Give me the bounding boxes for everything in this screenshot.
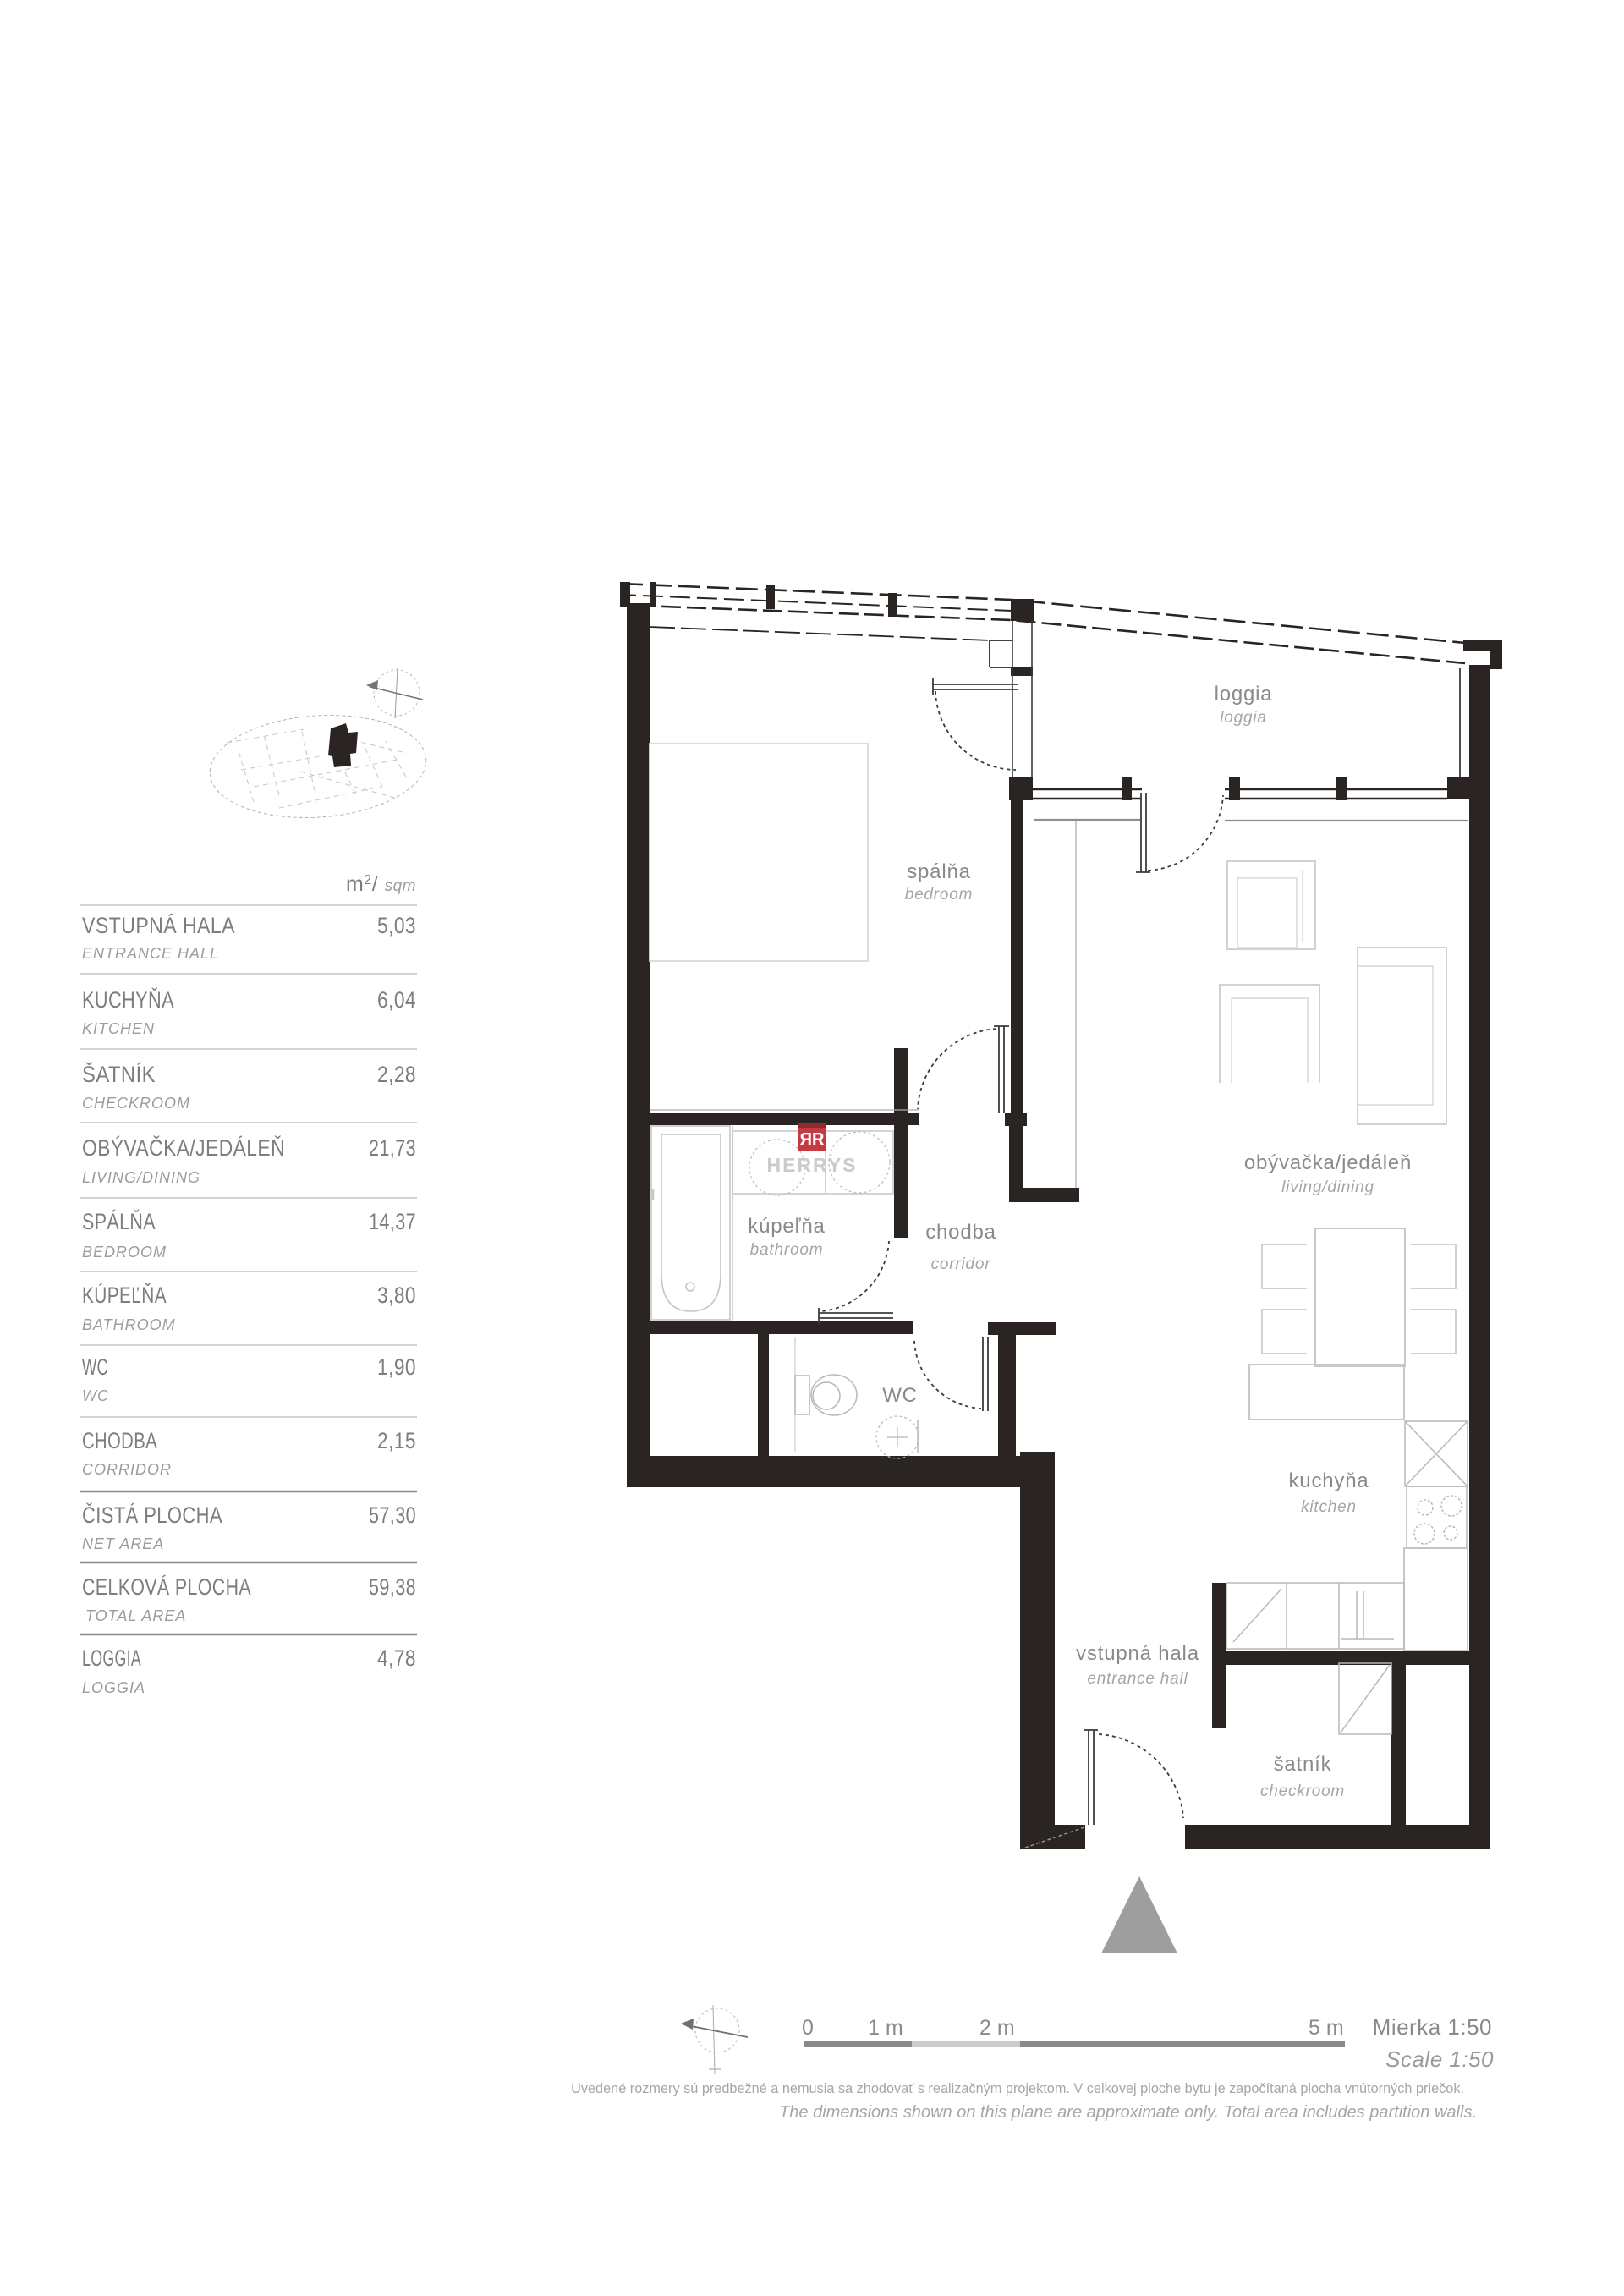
svg-text:NET AREA: NET AREA	[82, 1535, 164, 1552]
svg-text:14,37: 14,37	[369, 1209, 416, 1234]
svg-text:21,73: 21,73	[369, 1135, 416, 1161]
svg-text:CHODBA: CHODBA	[82, 1428, 157, 1453]
svg-text:2,28: 2,28	[377, 1062, 416, 1087]
svg-text:vstupná hala: vstupná hala	[1076, 1642, 1199, 1665]
svg-text:living/dining: living/dining	[1281, 1178, 1374, 1196]
svg-text:Scale 1:50: Scale 1:50	[1385, 2046, 1494, 2072]
svg-text:VSTUPNÁ HALA: VSTUPNÁ HALA	[82, 913, 235, 938]
svg-text:loggia: loggia	[1220, 709, 1267, 727]
svg-text:CHECKROOM: CHECKROOM	[82, 1095, 190, 1112]
svg-text:2,15: 2,15	[377, 1428, 416, 1453]
svg-text:SPÁLŇA: SPÁLŇA	[82, 1208, 156, 1234]
svg-text:BEDROOM: BEDROOM	[82, 1244, 167, 1261]
svg-text:5,03: 5,03	[377, 913, 416, 938]
svg-text:ŠATNÍK: ŠATNÍK	[82, 1061, 156, 1087]
svg-text:ENTRANCE HALL: ENTRANCE HALL	[82, 945, 219, 962]
svg-text:BATHROOM: BATHROOM	[82, 1316, 176, 1333]
svg-text:1 m: 1 m	[868, 2016, 903, 2040]
svg-text:59,38: 59,38	[369, 1574, 416, 1600]
svg-text:The dimensions shown on this p: The dimensions shown on this plane are a…	[779, 2103, 1477, 2122]
svg-text:Uvedené rozmery sú predbežné a: Uvedené rozmery sú predbežné a nemusia s…	[571, 2081, 1464, 2096]
svg-text:checkroom: checkroom	[1260, 1782, 1345, 1800]
svg-text:corridor: corridor	[931, 1255, 991, 1273]
svg-text:WC: WC	[82, 1387, 109, 1404]
svg-text:1,90: 1,90	[377, 1354, 416, 1380]
svg-text:bedroom: bedroom	[905, 886, 974, 904]
svg-text:0: 0	[802, 2016, 814, 2040]
svg-text:WC: WC	[882, 1384, 918, 1407]
svg-text:chodba: chodba	[925, 1221, 996, 1244]
svg-text:OBÝVAČKA/JEDÁLEŇ: OBÝVAČKA/JEDÁLEŇ	[82, 1134, 285, 1161]
svg-text:4,78: 4,78	[377, 1645, 416, 1671]
svg-text:ЯR: ЯR	[800, 1130, 825, 1149]
svg-text:2 m: 2 m	[979, 2016, 1015, 2040]
svg-text:LOGGIA: LOGGIA	[82, 1679, 145, 1696]
svg-text:6,04: 6,04	[377, 987, 416, 1013]
svg-text:3,80: 3,80	[377, 1283, 416, 1308]
svg-text:spálňa: spálňa	[907, 860, 971, 883]
svg-text:kuchyňa: kuchyňa	[1289, 1469, 1369, 1492]
svg-text:bathroom: bathroom	[750, 1241, 824, 1259]
svg-text:šatník: šatník	[1274, 1753, 1332, 1776]
svg-text:kitchen: kitchen	[1301, 1498, 1357, 1516]
svg-text:HERRYS: HERRYS	[767, 1154, 858, 1176]
svg-text:obývačka/jedáleň: obývačka/jedáleň	[1244, 1151, 1412, 1174]
svg-text:5 m: 5 m	[1309, 2016, 1344, 2040]
svg-text:loggia: loggia	[1215, 683, 1273, 706]
svg-text:LIVING/DINING: LIVING/DINING	[82, 1169, 200, 1186]
svg-text:LOGGIA: LOGGIA	[82, 1645, 141, 1671]
svg-text:57,30: 57,30	[369, 1502, 416, 1528]
svg-text:KÚPEĽŇA: KÚPEĽŇA	[82, 1282, 167, 1308]
svg-text:KUCHYŇA: KUCHYŇA	[82, 986, 174, 1013]
svg-text:KITCHEN: KITCHEN	[82, 1020, 155, 1037]
svg-text:kúpeľňa: kúpeľňa	[748, 1215, 825, 1238]
svg-text:CELKOVÁ PLOCHA: CELKOVÁ PLOCHA	[82, 1574, 251, 1600]
svg-text:CORRIDOR: CORRIDOR	[82, 1461, 172, 1478]
svg-text:TOTAL AREA: TOTAL AREA	[85, 1607, 186, 1624]
svg-text:WC: WC	[82, 1354, 108, 1380]
svg-text:ČISTÁ PLOCHA: ČISTÁ PLOCHA	[82, 1502, 222, 1528]
svg-text:entrance hall: entrance hall	[1087, 1670, 1188, 1688]
svg-text:Mierka 1:50: Mierka 1:50	[1373, 2014, 1492, 2040]
